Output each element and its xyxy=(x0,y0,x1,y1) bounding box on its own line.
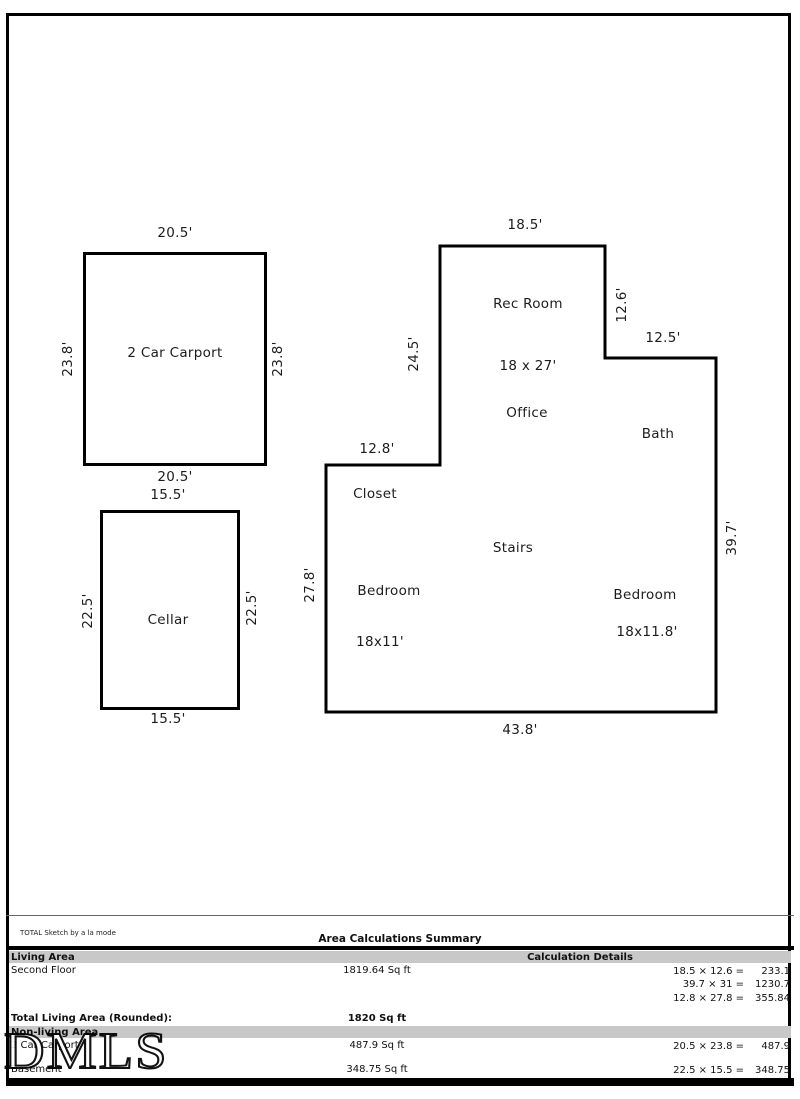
nonliving-row-area: 348.75 Sq ft xyxy=(327,1064,427,1075)
calc-expression: 39.7 × 31 = xyxy=(683,978,744,991)
carport-dim-right: 23.8' xyxy=(270,341,286,376)
calculation-details-header: Calculation Details xyxy=(455,952,705,963)
room-stairs-label: Stairs xyxy=(493,540,533,556)
calc-result: 348.75 xyxy=(744,1064,790,1077)
calc-result: 1230.7 xyxy=(744,978,790,991)
room-closet-label: Closet xyxy=(353,486,397,502)
cellar-outline xyxy=(102,512,239,709)
room-bath-label: Bath xyxy=(642,426,675,442)
carport-dim-bottom: 20.5' xyxy=(157,469,192,485)
nonliving-calc-details: 22.5 × 15.5 = 348.75 xyxy=(673,1064,790,1077)
mls-watermark: DMLS xyxy=(4,1026,169,1078)
calc-result: 487.9 xyxy=(744,1040,790,1053)
cellar-dim-right: 22.5' xyxy=(244,590,260,625)
secondfloor-dim-right-upper: 12.6' xyxy=(614,287,630,322)
secondfloor-dim-left: 27.8' xyxy=(302,567,318,602)
living-row-area: 1819.64 Sq ft xyxy=(327,965,427,976)
calc-expression: 22.5 × 15.5 = xyxy=(673,1064,744,1077)
calc-line: 39.7 × 31 = 1230.7 xyxy=(673,978,790,991)
secondfloor-dim-bottom: 43.8' xyxy=(502,722,537,738)
calc-line: 12.8 × 27.8 = 355.84 xyxy=(673,992,790,1005)
calc-expression: 18.5 × 12.6 = xyxy=(673,965,744,978)
calc-result: 355.84 xyxy=(744,992,790,1005)
calc-result: 233.1 xyxy=(744,965,790,978)
carport-room-label: 2 Car Carport xyxy=(127,345,222,361)
room-rec-label: Rec Room xyxy=(493,296,563,312)
calc-line: 20.5 × 23.8 = 487.9 xyxy=(673,1040,790,1053)
calc-expression: 12.8 × 27.8 = xyxy=(673,992,744,1005)
summary-top-bar xyxy=(6,946,794,950)
total-living-area-value: 1820 Sq ft xyxy=(327,1013,427,1024)
room-bedroom-left-size: 18x11' xyxy=(356,634,404,650)
carport-dim-left: 23.8' xyxy=(60,341,76,376)
nonliving-row-area: 487.9 Sq ft xyxy=(327,1040,427,1051)
cellar-room-label: Cellar xyxy=(148,612,189,628)
secondfloor-dim-right-offset: 12.5' xyxy=(645,330,680,346)
calc-line: 22.5 × 15.5 = 348.75 xyxy=(673,1064,790,1077)
calc-expression: 20.5 × 23.8 = xyxy=(673,1040,744,1053)
living-area-header: Living Area xyxy=(11,952,75,963)
living-calc-details: 18.5 × 12.6 = 233.1 39.7 × 31 = 1230.7 1… xyxy=(673,965,790,1005)
living-row-label: Second Floor xyxy=(11,965,76,976)
secondfloor-dim-top: 18.5' xyxy=(507,217,542,233)
cellar-dim-top: 15.5' xyxy=(150,487,185,503)
secondfloor-dim-right: 39.7' xyxy=(724,520,740,555)
room-bedroom-right-size: 18x11.8' xyxy=(616,624,677,640)
room-rec-size: 18 x 27' xyxy=(499,358,556,374)
cellar-dim-left: 22.5' xyxy=(80,593,96,628)
footer-divider xyxy=(6,915,794,916)
secondfloor-dim-left-offset: 12.8' xyxy=(359,441,394,457)
room-bedroom-right-label: Bedroom xyxy=(613,587,676,603)
carport-dim-top: 20.5' xyxy=(157,225,192,241)
secondfloor-dim-left-upper: 24.5' xyxy=(406,336,422,371)
cellar-dim-bottom: 15.5' xyxy=(150,711,185,727)
floorplan-canvas xyxy=(0,0,800,930)
room-office-label: Office xyxy=(506,405,547,421)
room-bedroom-left-label: Bedroom xyxy=(357,583,420,599)
nonliving-calc-details: 20.5 × 23.8 = 487.9 xyxy=(673,1040,790,1053)
calc-line: 18.5 × 12.6 = 233.1 xyxy=(673,965,790,978)
summary-title: Area Calculations Summary xyxy=(0,933,800,945)
